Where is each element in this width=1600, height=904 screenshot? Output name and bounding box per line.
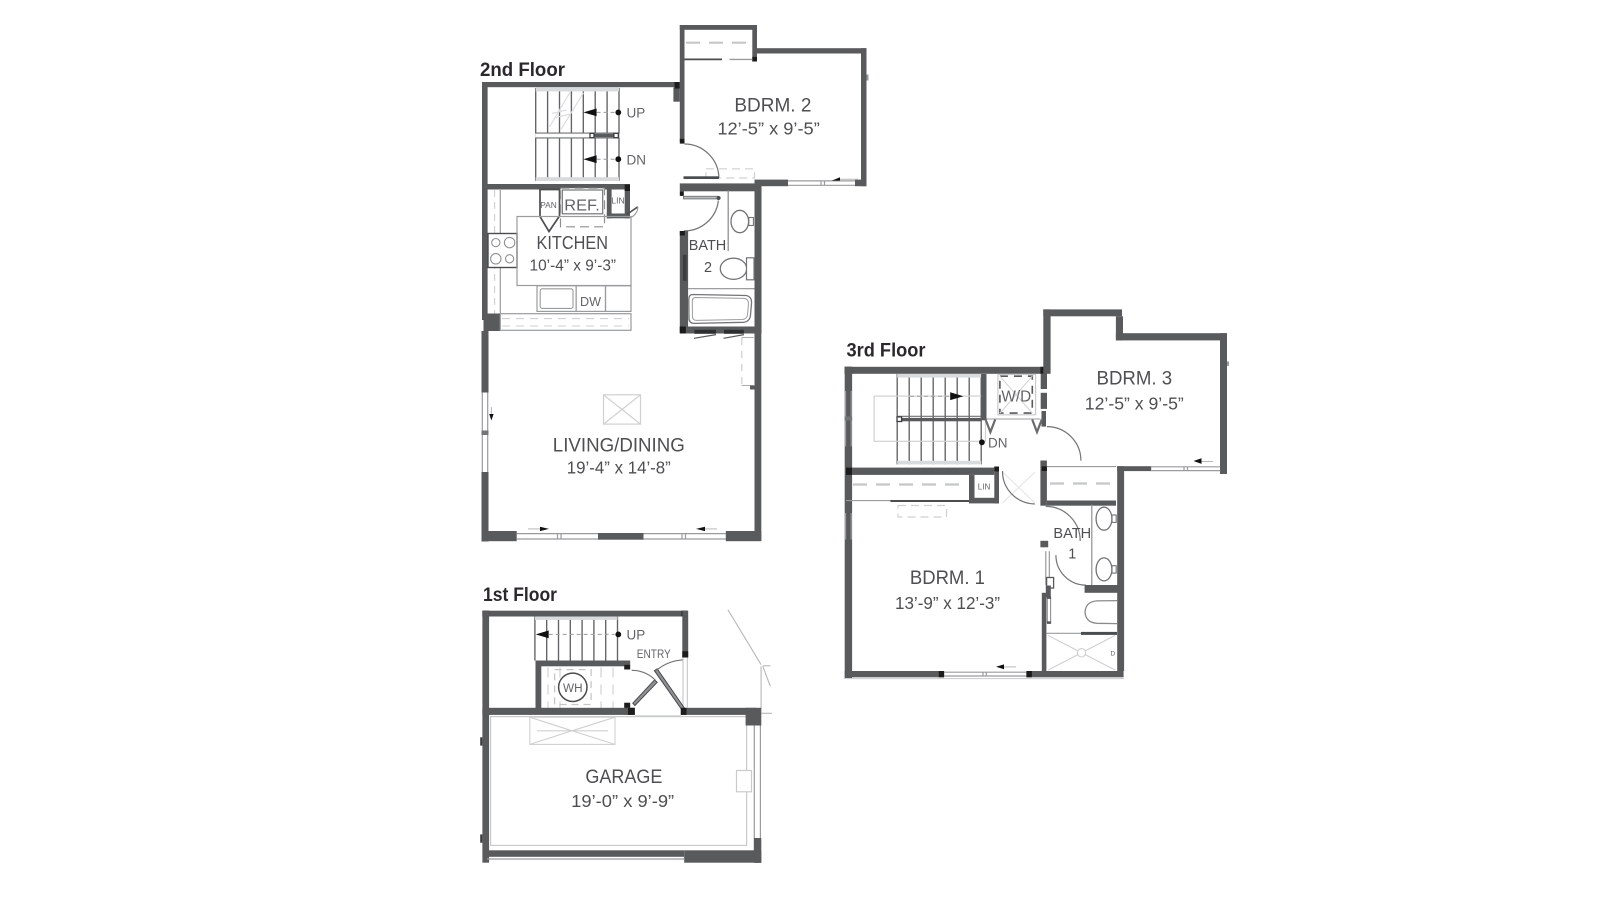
svg-text:WH: WH	[563, 681, 583, 695]
svg-text:GARAGE: GARAGE	[585, 766, 662, 788]
svg-text:REF.: REF.	[564, 198, 600, 215]
svg-text:13’-9” x 12’-3”: 13’-9” x 12’-3”	[895, 593, 1000, 613]
svg-text:1st Floor: 1st Floor	[483, 585, 557, 606]
svg-text:BDRM. 3: BDRM. 3	[1097, 368, 1173, 390]
svg-text:KITCHEN: KITCHEN	[537, 233, 609, 253]
svg-text:DW: DW	[580, 294, 602, 309]
svg-text:DN: DN	[988, 436, 1008, 451]
svg-text:10’-4” x 9’-3”: 10’-4” x 9’-3”	[530, 258, 617, 275]
svg-text:19’-4” x 14’-8”: 19’-4” x 14’-8”	[567, 458, 671, 478]
svg-text:PAN: PAN	[540, 200, 557, 210]
svg-text:1: 1	[1068, 547, 1076, 563]
svg-text:BATH: BATH	[689, 238, 727, 254]
svg-text:ENTRY: ENTRY	[637, 649, 671, 661]
svg-text:2: 2	[704, 260, 712, 276]
svg-text:LIN: LIN	[978, 482, 991, 492]
svg-text:BATH: BATH	[1053, 526, 1091, 542]
svg-text:19’-0” x 9’-9”: 19’-0” x 9’-9”	[571, 791, 674, 811]
svg-text:12’-5” x 9’-5”: 12’-5” x 9’-5”	[1085, 394, 1184, 414]
svg-text:D: D	[1111, 651, 1116, 658]
svg-text:2nd Floor: 2nd Floor	[480, 60, 565, 81]
svg-text:UP: UP	[627, 106, 646, 121]
svg-text:UP: UP	[627, 628, 646, 643]
svg-text:DN: DN	[627, 152, 647, 167]
svg-text:12’-5” x 9’-5”: 12’-5” x 9’-5”	[717, 119, 820, 139]
svg-text:BDRM. 1: BDRM. 1	[910, 567, 985, 589]
svg-text:LIN: LIN	[611, 196, 624, 206]
svg-text:W/D: W/D	[1001, 388, 1031, 405]
svg-text:BDRM. 2: BDRM. 2	[734, 95, 811, 117]
svg-text:LIVING/DINING: LIVING/DINING	[553, 435, 685, 457]
svg-text:3rd Floor: 3rd Floor	[847, 341, 926, 362]
